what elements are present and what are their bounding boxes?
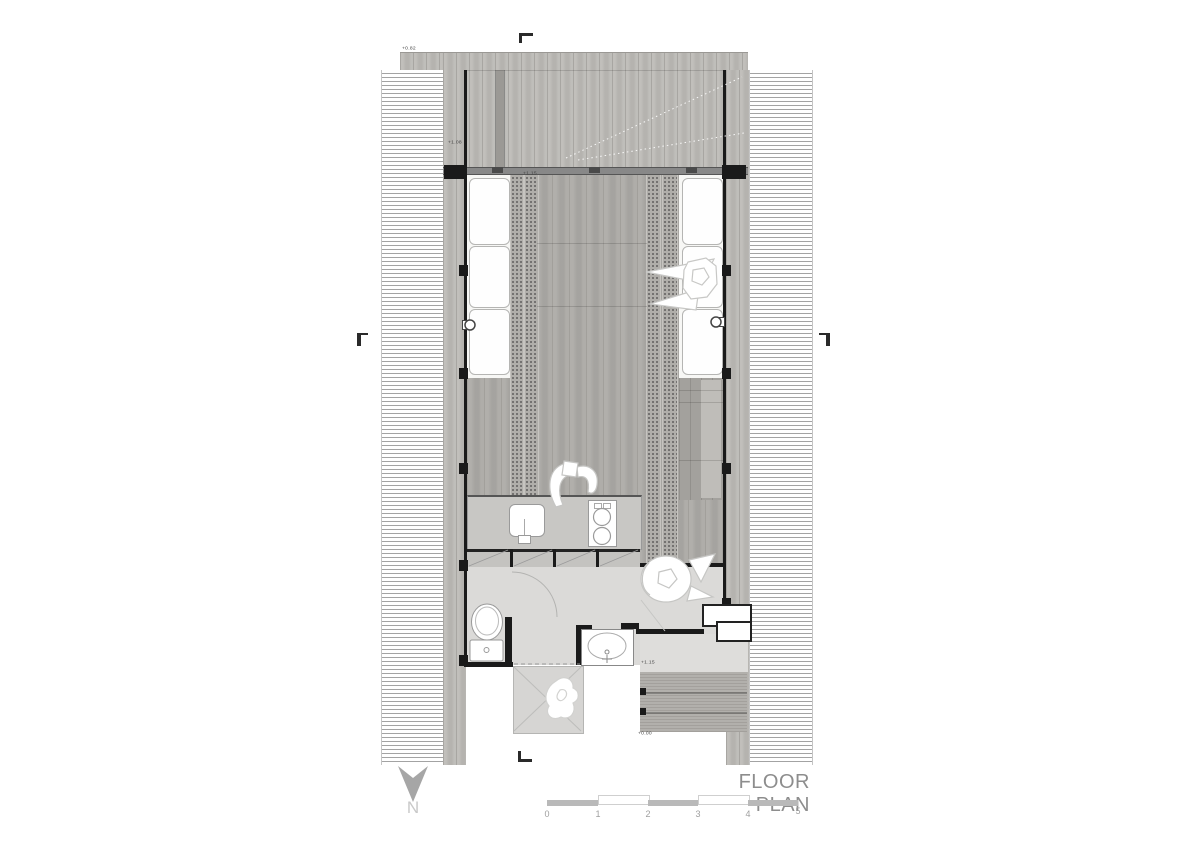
section-marker-bottom [518,759,532,762]
scale-tick: 3 [690,809,706,819]
cabinet-diagonals [469,550,638,566]
washbasin-icon [588,633,626,663]
section-marker-right [826,333,830,346]
scale-segment [547,800,598,806]
scale-tick: 2 [640,809,656,819]
level-label-hall: +1.15 [523,170,537,176]
level-label-deck-top: +0.82 [402,45,416,51]
person-figure-sitting [641,554,715,602]
door-handle-icon [463,317,725,330]
section-marker-top [519,33,522,43]
person-figure-walking [546,678,578,719]
section-marker-left [357,333,361,346]
scale-segment [598,795,650,805]
person-figure-cooking [550,461,597,507]
scale-tick: 1 [590,809,606,819]
scale-tick: 0 [539,809,555,819]
plan-annotations [0,0,1200,849]
scale-tick: 5 [790,806,806,816]
deck-drain-lines [566,77,744,160]
toilet-icon [470,604,503,661]
scale-segment [648,800,698,806]
level-label-entry: +0.00 [638,730,652,736]
north-arrow-icon [398,766,428,802]
level-label-deck: +1.08 [448,139,462,145]
floor-plan-sheet: +0.82 +1.08 +1.15 +1.15 +0.00 N FLOOR PL… [0,0,1200,849]
cooktop-burner-icon [594,509,611,545]
level-label-bath: +1.15 [641,659,655,665]
north-label: N [403,798,423,818]
scale-tick: 4 [740,809,756,819]
person-figure-lounging [646,258,717,310]
scale-segment [698,795,750,805]
